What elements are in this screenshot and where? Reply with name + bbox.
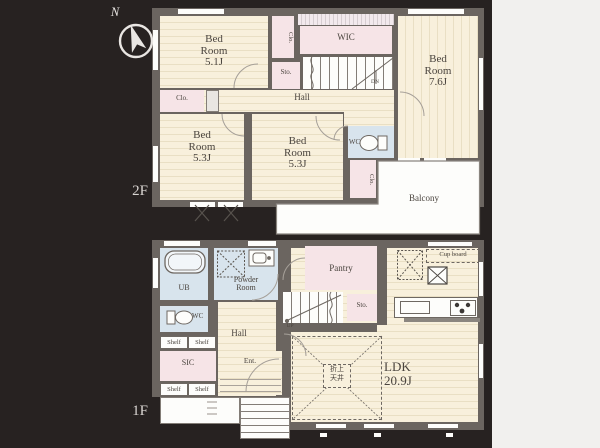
raised-ceiling-label: 折上天井: [323, 364, 351, 388]
wic-label: WIC: [320, 33, 372, 42]
balcony-label: Balcony: [388, 194, 460, 203]
porch-steps: [207, 402, 217, 414]
entrance-label: Ent.: [232, 357, 268, 365]
bathtub-icon: [165, 251, 205, 273]
stairs-detail-1f: [285, 292, 341, 323]
bedroom-5-3-center-label: BedRoom5.3J: [252, 136, 343, 171]
ldk-label: LDK20.9J: [384, 360, 444, 389]
washbasin-icon: [249, 250, 274, 266]
bedroom-5-1-label: BedRoom5.1J: [168, 34, 260, 69]
bedroom-7-6-label: BedRoom7.6J: [398, 54, 478, 89]
hall-1f-label: Hall: [218, 329, 260, 338]
pantry-label: Pantry: [312, 264, 370, 273]
toilet-icon: [360, 136, 387, 151]
kitchen-box-icon: [428, 267, 447, 284]
closet-top-label: Clo.: [273, 20, 293, 56]
plan-decorations: [0, 0, 600, 448]
closet-left-label: Clo.: [162, 95, 202, 102]
cupboard-label: Cup board: [426, 252, 480, 259]
storage-2f-label: Sto.: [272, 69, 300, 76]
washing-machine-icon: [218, 251, 245, 277]
storage-1f-label: Sto.: [347, 302, 377, 309]
compass-icon: [120, 23, 152, 57]
bedroom-5-3-left-label: BedRoom5.3J: [160, 130, 244, 165]
unit-bath-label: UB: [168, 284, 200, 292]
wc-2f-label: WC: [347, 139, 362, 146]
hall-2f-label: Hall: [280, 93, 324, 102]
powder-room-label: PowderRoom: [216, 276, 276, 293]
toilet-icon: [167, 311, 193, 324]
floor2-label: 2F: [98, 183, 148, 200]
refrigerator-icon: [398, 251, 423, 280]
stove-burners: [455, 303, 470, 314]
compass-north-label: N: [106, 6, 124, 19]
stairs-dn-label: DN: [366, 80, 384, 86]
floorplan-page: ShelfShelf ShelfShelf: [0, 0, 600, 448]
closet-right-label: Clo.: [352, 164, 374, 196]
sic-label: SIC: [166, 359, 210, 367]
roof-x-marks: [195, 205, 238, 221]
floor1-label: 1F: [98, 403, 148, 420]
stairs-up-label: UP: [283, 324, 297, 330]
wc-1f-label: WC: [192, 313, 210, 320]
